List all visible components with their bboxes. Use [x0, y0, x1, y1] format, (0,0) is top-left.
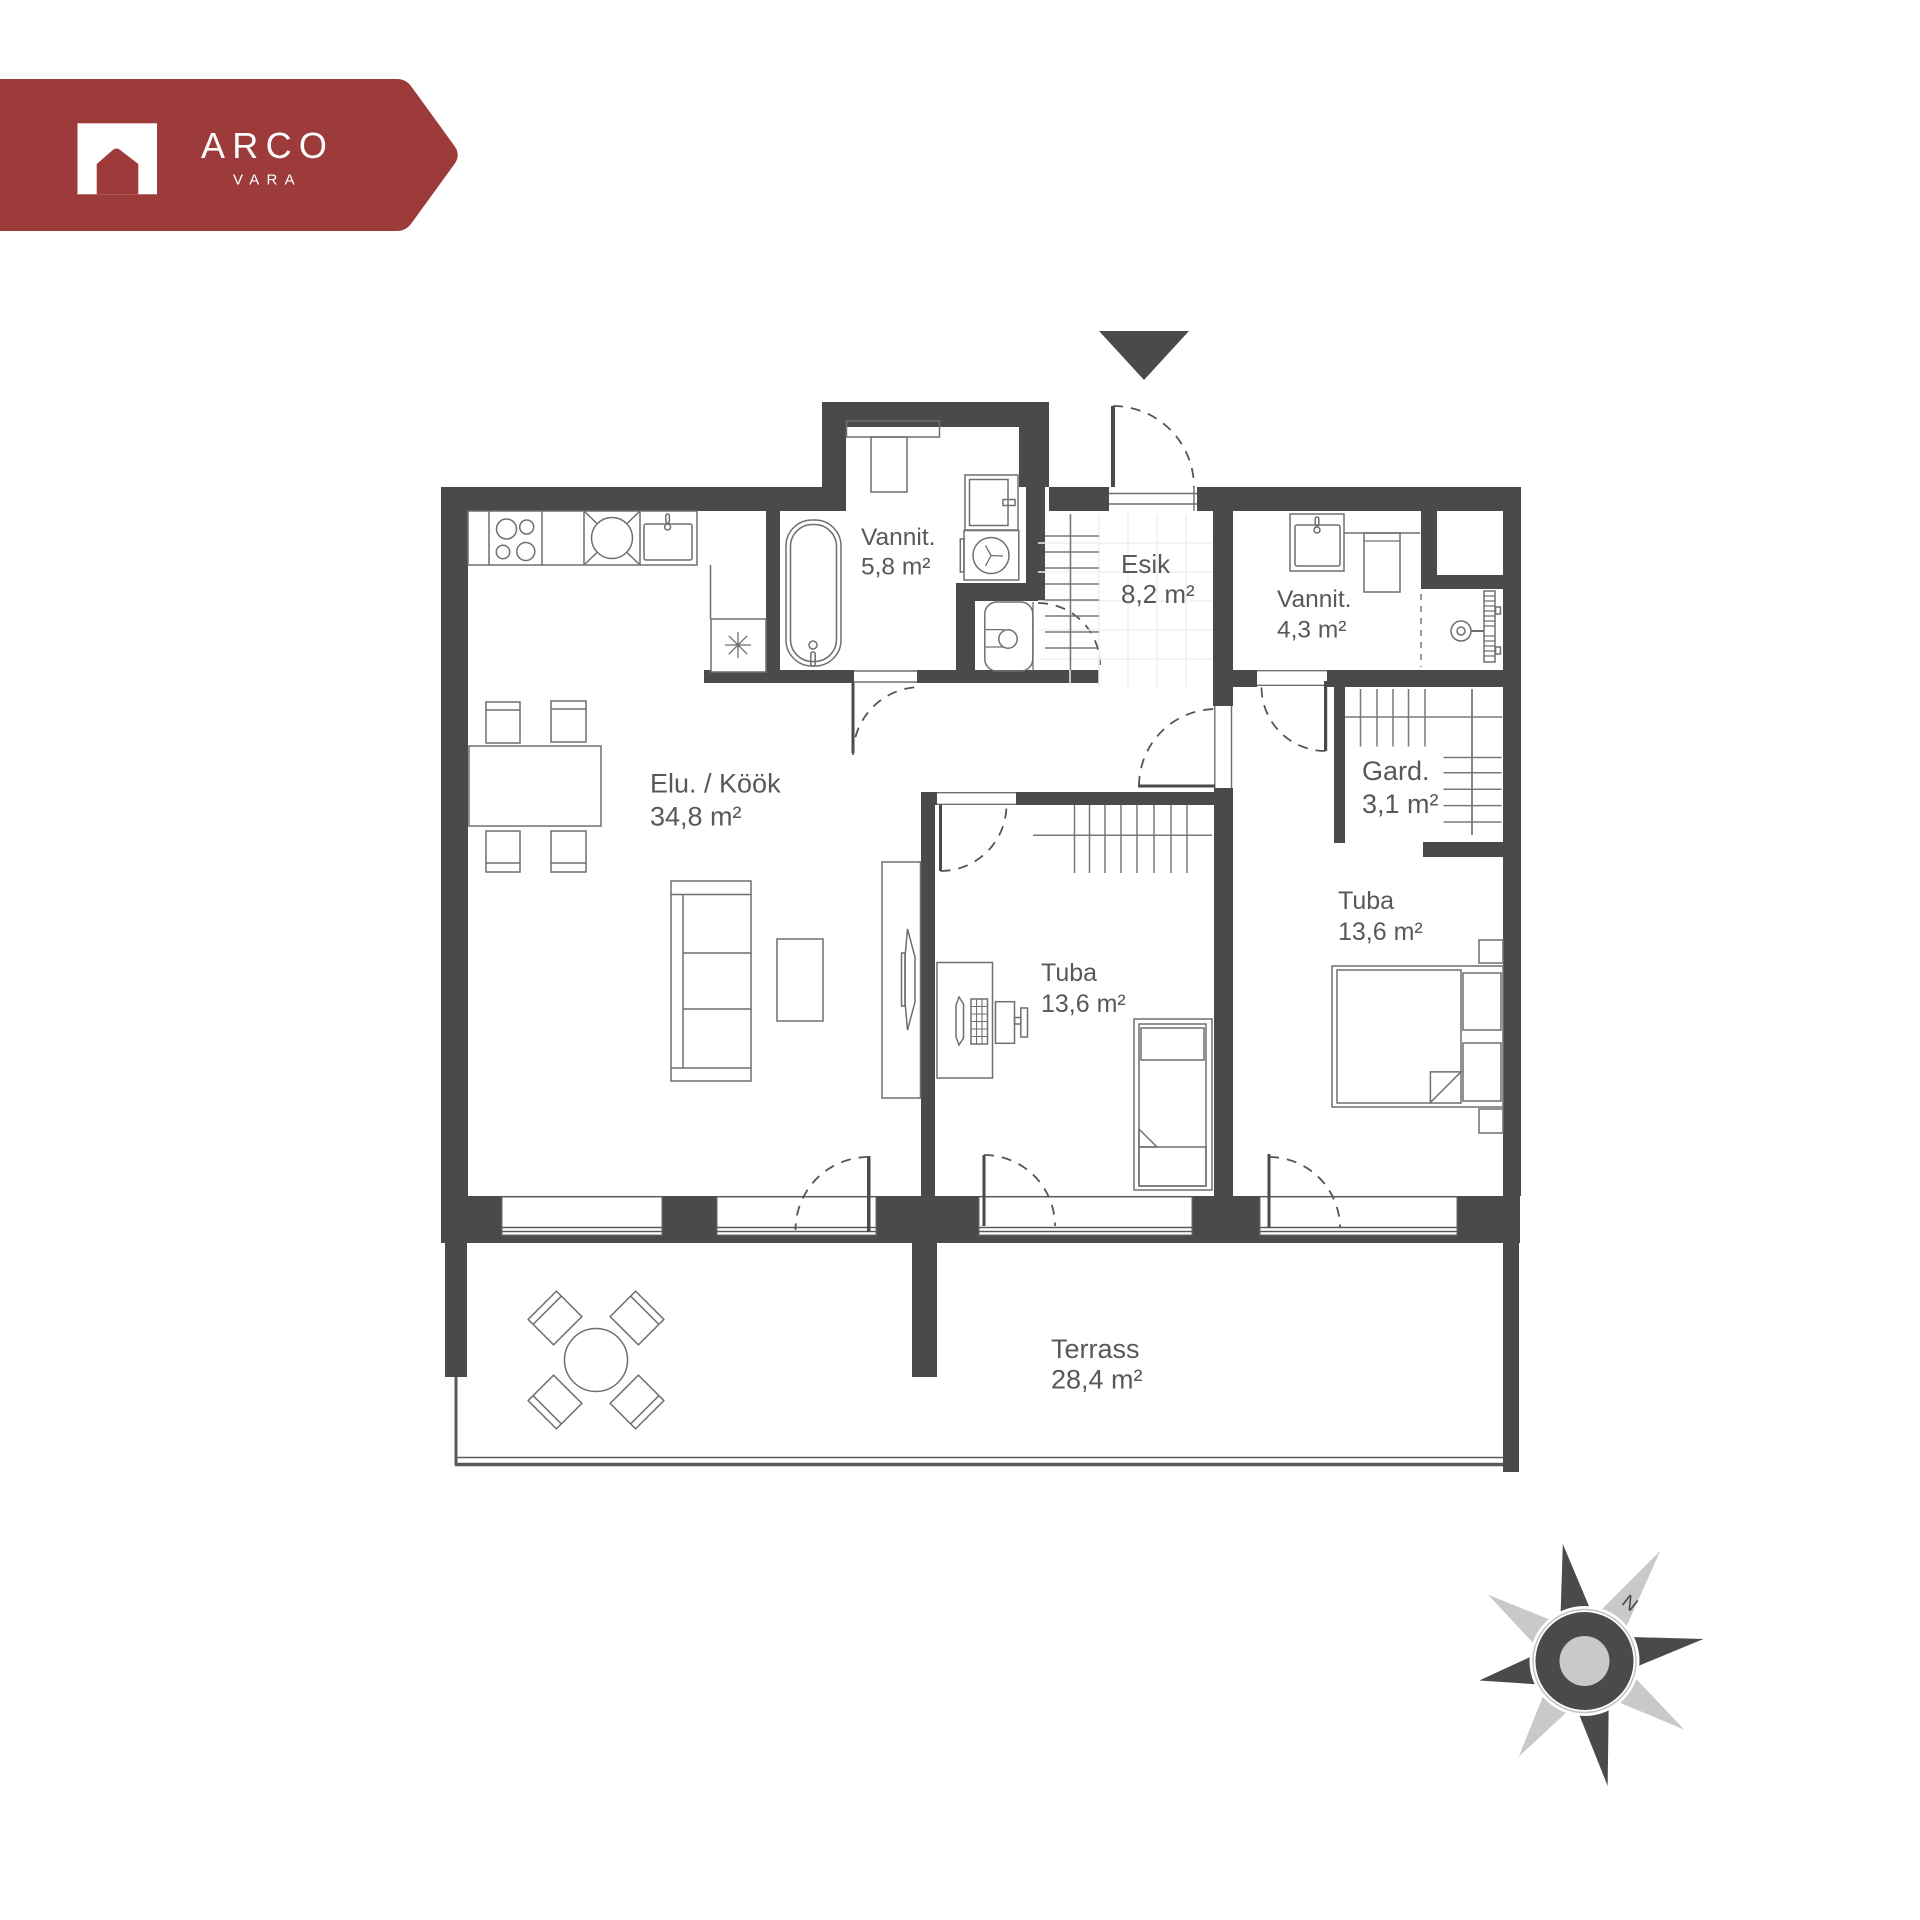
svg-text:Tuba: Tuba: [1041, 959, 1097, 987]
svg-text:Tuba: Tuba: [1338, 887, 1394, 915]
svg-text:Esik: Esik: [1121, 549, 1171, 579]
svg-text:3,1 m²: 3,1 m²: [1362, 789, 1439, 819]
svg-text:Terrass: Terrass: [1051, 1334, 1140, 1364]
svg-text:Vannit.: Vannit.: [861, 524, 935, 551]
svg-text:ARCO: ARCO: [201, 125, 334, 166]
svg-text:8,2 m²: 8,2 m²: [1121, 579, 1195, 609]
svg-text:5,8 m²: 5,8 m²: [861, 554, 930, 581]
svg-text:28,4 m²: 28,4 m²: [1051, 1365, 1143, 1395]
svg-text:4,3 m²: 4,3 m²: [1277, 617, 1346, 644]
svg-text:34,8 m²: 34,8 m²: [650, 802, 742, 832]
svg-text:VARA: VARA: [233, 172, 302, 189]
svg-text:Elu. / Köök: Elu. / Köök: [650, 769, 781, 799]
svg-text:13,6 m²: 13,6 m²: [1041, 990, 1126, 1018]
svg-text:Gard.: Gard.: [1362, 756, 1430, 786]
svg-text:13,6 m²: 13,6 m²: [1338, 918, 1423, 946]
svg-text:Vannit.: Vannit.: [1277, 586, 1351, 613]
